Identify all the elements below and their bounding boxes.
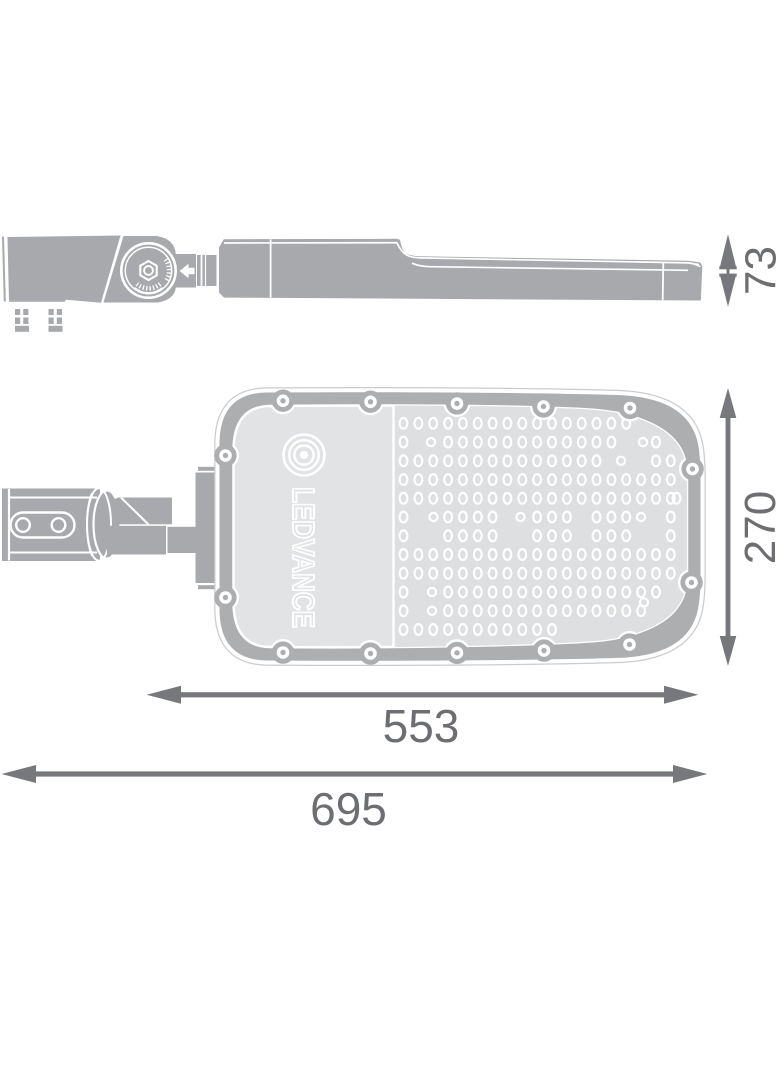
svg-text:73: 73 xyxy=(737,246,784,295)
svg-text:270: 270 xyxy=(736,491,784,564)
svg-text:695: 695 xyxy=(310,783,387,835)
svg-text:553: 553 xyxy=(383,700,460,752)
svg-text:LEDVANCE: LEDVANCE xyxy=(286,487,321,628)
